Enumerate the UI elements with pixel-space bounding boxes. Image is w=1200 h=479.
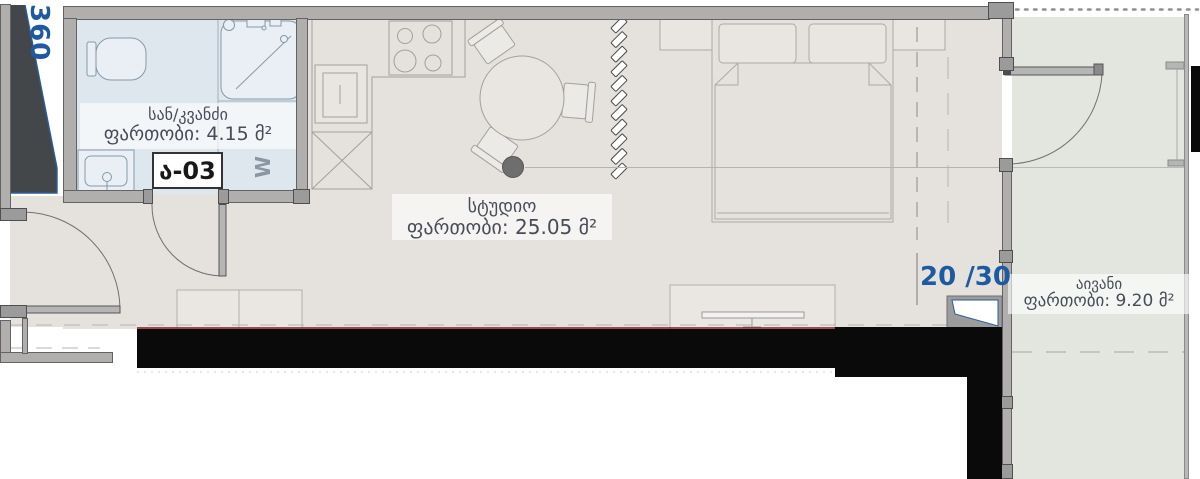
wall-left-lower [0, 320, 11, 354]
nightstand-icon [660, 19, 712, 50]
poche-bottom-main [137, 329, 835, 368]
bed-group [660, 19, 945, 222]
poche-right-column [967, 377, 1002, 479]
balcony-window-returns [1166, 62, 1184, 166]
chair-icon [561, 80, 595, 123]
corridor-wall-band [0, 352, 113, 363]
dining-table-icon [480, 56, 564, 140]
top-right-wall-block [988, 2, 1014, 19]
column [503, 157, 524, 178]
level-marker-icon [947, 296, 1002, 329]
dining-set [467, 18, 595, 173]
stove-icon [389, 21, 452, 75]
entry-jamb-bottom [0, 305, 27, 318]
floor-indicator-label: 20 /30 [920, 263, 1011, 292]
studio-area-label: ფართობი: 25.05 მ² [392, 216, 612, 238]
wall-balcony-right [1184, 14, 1189, 479]
railing-dots [1012, 2, 1200, 17]
toilet-bowl-icon [96, 38, 146, 80]
studio-name-label: სტუდიო [392, 197, 612, 217]
partition-hatch [611, 17, 627, 179]
bath-door-jamb-right [218, 189, 229, 204]
bathroom-door [152, 197, 226, 276]
tv-console [670, 285, 835, 330]
faucet-icon [103, 173, 112, 182]
shower-head-icon [224, 20, 235, 31]
balcony-door [1003, 64, 1103, 164]
bathroom-area-label: ფართობი: 4.15 მ² [80, 124, 296, 145]
wall-balcony-lower [1002, 162, 1012, 479]
floor-plan-canvas: სან/კვანძი ფართობი: 4.15 მ² სტუდიო ფართო… [0, 0, 1200, 479]
poche-right-edge [1191, 66, 1200, 152]
pillow-icon [719, 24, 796, 63]
toilet-icon [87, 42, 96, 76]
wall-left-upper [0, 4, 11, 210]
entry-jamb-top [0, 208, 27, 221]
kitchen-counter [312, 18, 465, 189]
wardrobe-icon [177, 290, 302, 328]
wall-bathroom-bottom-left [63, 190, 152, 203]
poche-bottom-right [835, 327, 1002, 377]
balcony-wall-joint [999, 57, 1014, 71]
bath-door-jamb-left [143, 189, 153, 204]
kitchen-wall-joint [293, 189, 310, 204]
wall-bathroom-right [296, 18, 308, 194]
shaft-dimension-label: 360 [24, 4, 53, 61]
unit-number-label: ა-03 [159, 157, 216, 185]
pillow-icon [809, 24, 886, 63]
shower-tray-icon [221, 21, 301, 99]
balcony-area-label: ფართობი: 9.20 მ² [1008, 292, 1190, 311]
unit-number-badge: ა-03 [152, 152, 223, 189]
washer-label: W [252, 156, 274, 178]
balcony-wall-joint [999, 158, 1013, 172]
wall-bathroom-left [63, 18, 77, 194]
nightstand-icon [893, 19, 945, 50]
bathroom-name-label: სან/კვანძი [80, 106, 296, 124]
corridor-wall-stub [22, 318, 28, 354]
wall-top [63, 6, 990, 20]
entry-door [17, 212, 120, 314]
